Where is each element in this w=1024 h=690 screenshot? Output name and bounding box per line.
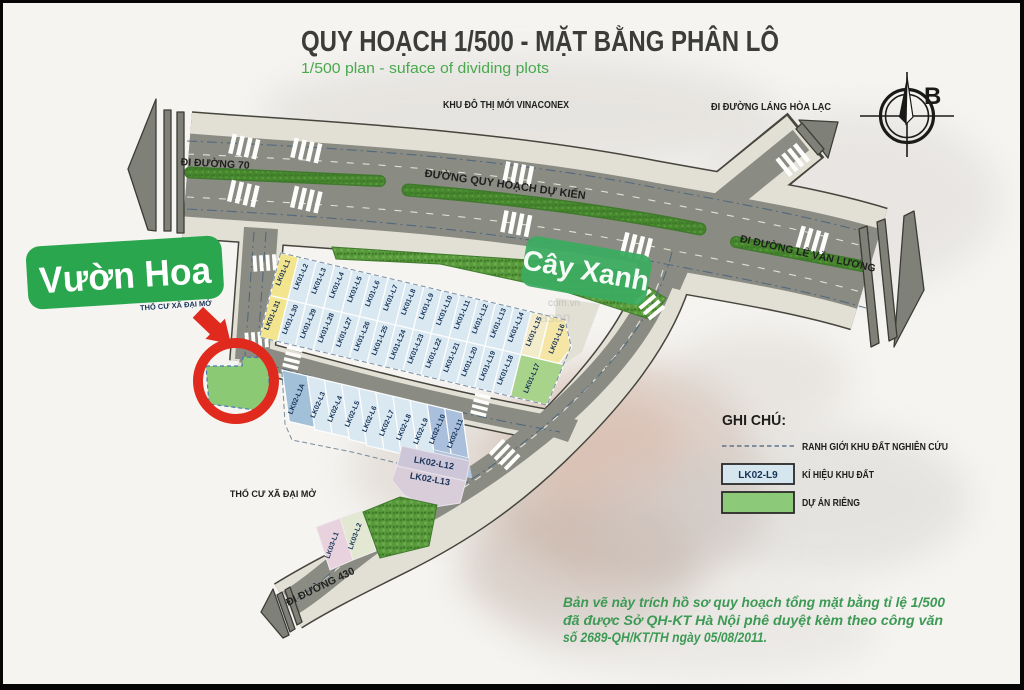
svg-text:asan: asan [540, 309, 570, 325]
svg-text:LK02-L9: LK02-L9 [738, 470, 778, 481]
svg-text:Bản vẽ này trích hồ sơ quy hoạ: Bản vẽ này trích hồ sơ quy hoạch tổng mặ… [563, 595, 945, 610]
svg-text:THỔ CƯ XÃ ĐẠI MỞ: THỔ CƯ XÃ ĐẠI MỞ [230, 488, 316, 499]
svg-text:DỰ ÁN RIÊNG: DỰ ÁN RIÊNG [802, 496, 860, 509]
svg-text:số 2689-QH/KT/TH ngày 05/08/20: số 2689-QH/KT/TH ngày 05/08/2011. [563, 630, 767, 645]
svg-text:ĐI ĐƯỜNG LÁNG HÒA LẠC: ĐI ĐƯỜNG LÁNG HÒA LẠC [711, 100, 831, 113]
svg-text:B: B [924, 83, 941, 110]
svg-text:KHU ĐÔ THỊ MỚI VINACONEX: KHU ĐÔ THỊ MỚI VINACONEX [443, 98, 569, 111]
svg-text:KÍ HIỆU KHU ĐẤT: KÍ HIỆU KHU ĐẤT [802, 468, 874, 481]
svg-text:1/500 plan - suface of dividin: 1/500 plan - suface of dividing plots [301, 60, 549, 77]
svg-text:com.vn: com.vn [548, 298, 580, 309]
svg-text:RANH GIỚI KHU ĐẤT NGHIÊN CỨU: RANH GIỚI KHU ĐẤT NGHIÊN CỨU [802, 440, 948, 453]
svg-text:đã được Sở QH-KT Hà Nội phê du: đã được Sở QH-KT Hà Nội phê duyệt kèm th… [563, 613, 943, 628]
svg-text:QUY HOẠCH 1/500 - MẶT BẰNG PHÂ: QUY HOẠCH 1/500 - MẶT BẰNG PHÂN LÔ [301, 24, 779, 58]
svg-text:GHI CHÚ:: GHI CHÚ: [722, 411, 786, 429]
